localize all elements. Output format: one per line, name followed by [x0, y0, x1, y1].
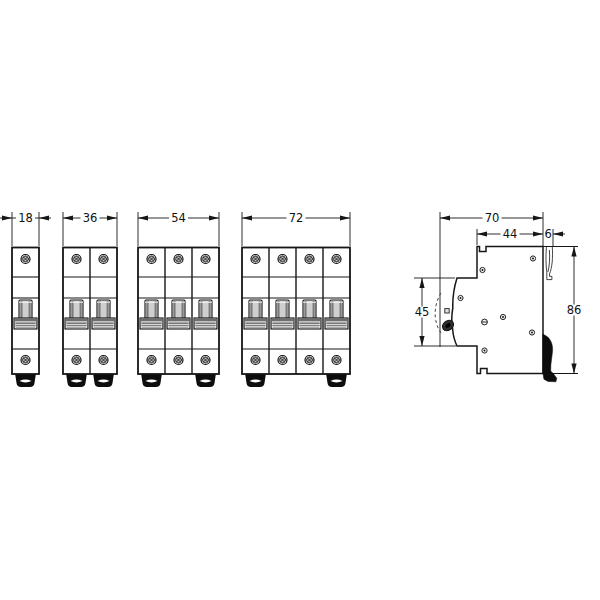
din-clip: [245, 373, 266, 387]
rivet: [482, 348, 487, 353]
din-hook-slot: [548, 250, 550, 272]
front-height-dim-label: 45: [415, 305, 430, 319]
side-outline: [452, 247, 543, 374]
width-dimension: 18: [0, 211, 51, 246]
front-view-2pole: 36: [63, 211, 117, 387]
terminal-screw: [147, 356, 156, 365]
din-clip: [66, 373, 87, 387]
body-depth-dim-label: 44: [503, 227, 518, 241]
terminal-screw: [99, 356, 108, 365]
width-dimension: 36: [63, 211, 117, 246]
din-clip: [195, 373, 216, 387]
terminal-screw: [99, 255, 108, 264]
rivet: [530, 256, 535, 261]
terminal-screw: [21, 356, 30, 365]
depth-dim-label: 70: [485, 211, 500, 225]
front-view-1pole: 18: [0, 211, 51, 387]
hook-dimension: 6: [545, 227, 565, 241]
toggle-base: [298, 318, 321, 329]
drawing-canvas: 18365472 70 44 6 4: [0, 0, 600, 600]
rivet: [500, 314, 505, 319]
toggle-base: [194, 318, 217, 329]
front-view-3pole: 54: [138, 211, 219, 387]
terminal-screw: [72, 356, 81, 365]
height-dim-label: 86: [567, 303, 582, 317]
toggle-base: [140, 318, 163, 329]
width-dimension: 72: [242, 211, 350, 246]
terminal-screw: [201, 356, 210, 365]
rivet: [458, 295, 463, 300]
terminal-screw: [174, 356, 183, 365]
hook-dim-label: 6: [545, 227, 552, 241]
rivet-slotted: [482, 319, 488, 325]
terminal-screw: [251, 356, 260, 365]
front-views-group: 18365472: [0, 211, 350, 387]
toggle-base: [271, 318, 294, 329]
din-clip: [93, 373, 114, 387]
toggle-base: [65, 318, 88, 329]
side-view: 70 44 6 45 86: [413, 211, 584, 382]
toggle-base: [325, 318, 348, 329]
depth-dimension: 70: [440, 211, 543, 225]
terminal-screw: [21, 255, 30, 264]
rivet: [480, 267, 485, 272]
toggle-base: [244, 318, 267, 329]
front-view-4pole: 72: [242, 211, 350, 387]
width-dim-label: 72: [289, 211, 304, 225]
terminal-screw: [305, 356, 314, 365]
terminal-screw: [72, 255, 81, 264]
terminal-screw: [278, 356, 287, 365]
toggle-base: [92, 318, 115, 329]
toggle-arc: [435, 293, 442, 334]
din-clip: [141, 373, 162, 387]
rivet: [529, 330, 534, 335]
dimension-drawing: 18365472 70 44 6 4: [0, 0, 600, 600]
height-dimension: 86: [565, 247, 584, 374]
toggle-pivot: [445, 309, 449, 313]
terminal-screw: [278, 255, 287, 264]
din-clip-side: [543, 334, 557, 382]
width-dim-label: 18: [18, 211, 33, 225]
width-dimension: 54: [138, 211, 219, 246]
terminal-screw: [332, 255, 341, 264]
toggle-base: [167, 318, 190, 329]
terminal-screw: [147, 255, 156, 264]
terminal-screw: [201, 255, 210, 264]
terminal-screw: [251, 255, 260, 264]
front-height-dimension: 45: [413, 278, 431, 346]
terminal-screw: [332, 356, 341, 365]
body-depth-dimension: 44: [477, 227, 543, 241]
width-dim-label: 36: [83, 211, 98, 225]
width-dim-label: 54: [171, 211, 186, 225]
din-clip: [15, 373, 36, 387]
toggle-base: [14, 318, 37, 329]
terminal-screw: [174, 255, 183, 264]
terminal-screw: [305, 255, 314, 264]
din-clip: [326, 373, 347, 387]
